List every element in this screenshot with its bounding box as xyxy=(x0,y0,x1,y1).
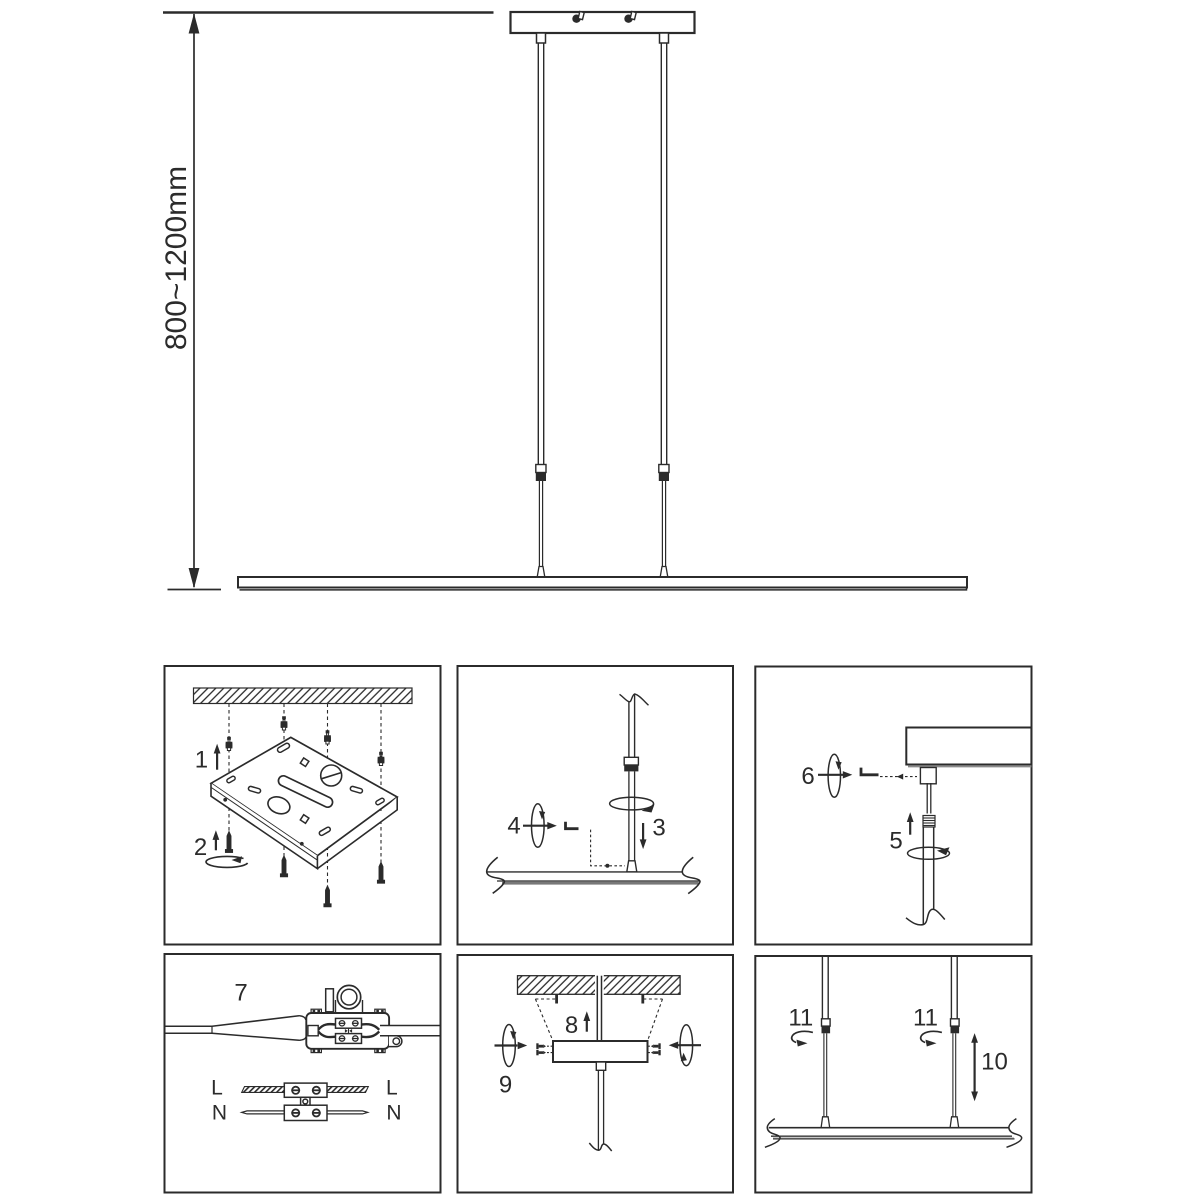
svg-text:9: 9 xyxy=(499,1072,512,1099)
svg-text:N: N xyxy=(212,1102,227,1125)
svg-text:11: 11 xyxy=(788,1005,813,1032)
svg-text:5: 5 xyxy=(889,827,902,854)
svg-text:800~1200mm: 800~1200mm xyxy=(160,166,193,350)
svg-text:2: 2 xyxy=(194,834,207,861)
svg-text:3: 3 xyxy=(652,815,665,842)
svg-text:8: 8 xyxy=(565,1012,578,1039)
svg-text:N: N xyxy=(386,1102,401,1125)
svg-text:11: 11 xyxy=(913,1005,938,1032)
svg-text:1: 1 xyxy=(195,746,208,773)
svg-text:7: 7 xyxy=(234,979,247,1006)
svg-text:L: L xyxy=(211,1076,223,1099)
svg-text:4: 4 xyxy=(507,813,520,840)
svg-text:L: L xyxy=(386,1076,398,1099)
svg-text:6: 6 xyxy=(801,763,814,790)
svg-text:10: 10 xyxy=(981,1049,1008,1076)
